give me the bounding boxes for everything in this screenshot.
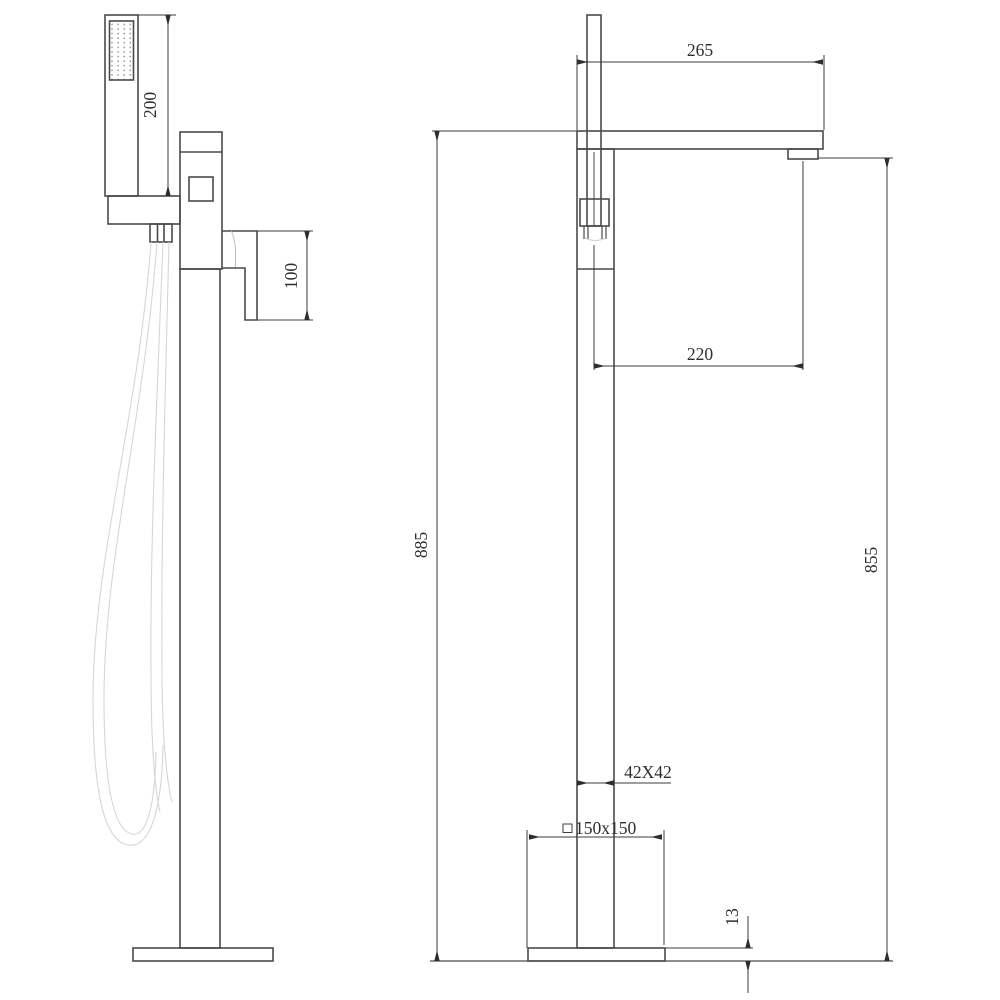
dim-label-150x150: 150x150 xyxy=(575,818,637,838)
front-view xyxy=(430,15,893,961)
square-section-symbol xyxy=(563,824,572,833)
side-view xyxy=(93,15,273,961)
dim-handshower-to-spout xyxy=(594,161,803,370)
dim-label-200: 200 xyxy=(140,92,160,119)
hand-shower-hose xyxy=(93,242,172,845)
dim-label-220: 220 xyxy=(687,344,714,364)
dim-spout-reach xyxy=(577,55,824,130)
hose-line xyxy=(162,242,172,802)
diverter-button xyxy=(189,177,213,201)
lever-handle xyxy=(222,231,257,320)
dim-base-plate xyxy=(527,824,664,948)
hose-line xyxy=(151,242,163,812)
dim-label-855: 855 xyxy=(861,547,881,574)
dim-spout-outlet-height xyxy=(818,158,893,961)
dim-label-42x42: 42X42 xyxy=(624,762,672,782)
hose-nut xyxy=(150,224,172,242)
front-view-dimensions xyxy=(432,55,893,993)
spray-face-plate xyxy=(110,21,134,80)
dim-label-885: 885 xyxy=(411,532,431,559)
hose-line xyxy=(104,242,157,834)
dim-label-265: 265 xyxy=(687,40,714,60)
technical-drawing-page: 200 100 xyxy=(0,0,1000,1000)
handshower-holder xyxy=(108,196,180,224)
faucet-technical-drawing: 200 100 xyxy=(0,0,1000,1000)
spout-outlet xyxy=(788,149,818,159)
dim-label-13: 13 xyxy=(722,908,742,926)
dim-base-thickness xyxy=(665,916,753,993)
base-plate-front xyxy=(528,948,665,961)
riser-column xyxy=(180,269,220,948)
base-plate xyxy=(133,948,273,961)
spout-arm xyxy=(577,131,823,149)
lever-neck-detail xyxy=(232,231,236,267)
dim-label-100: 100 xyxy=(281,263,301,290)
